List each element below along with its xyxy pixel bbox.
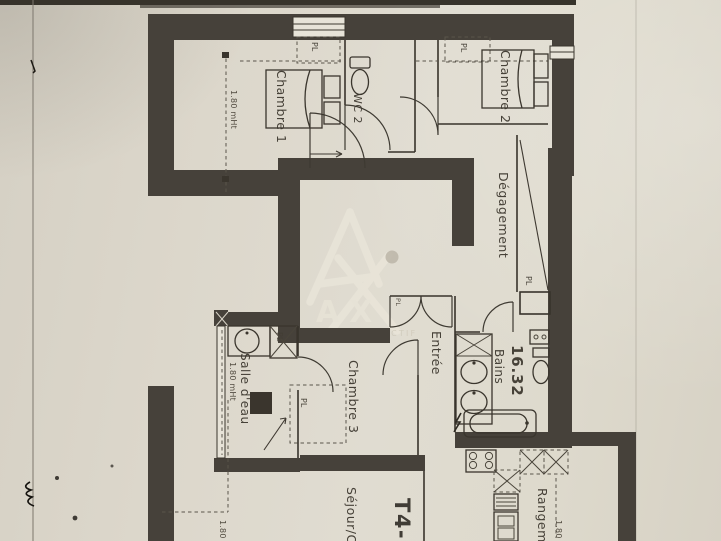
dimension-label: 1.80 mHt <box>228 362 236 401</box>
water-heater-icon <box>530 330 549 344</box>
ink-dot <box>73 516 78 521</box>
bed-icon <box>482 50 548 108</box>
ink-dot <box>111 465 114 468</box>
room-label-chambre2: Chambre 2 <box>499 50 512 123</box>
ink-dot <box>55 476 59 480</box>
door-arc <box>383 340 418 375</box>
room-label-wc2: WC 2 <box>352 93 363 124</box>
room-label-bains: Bains <box>493 349 505 384</box>
room-label-rangement: Rangem <box>536 488 549 541</box>
window-opening-arrow-icon <box>264 418 286 450</box>
closet-label: PL <box>275 332 283 341</box>
door-arc <box>421 296 452 327</box>
dimension-label: 1.80 <box>218 520 226 539</box>
room-label-chambre1: Chambre 1 <box>275 70 288 143</box>
entrance-arrow-icon <box>310 151 342 157</box>
technical-hatch-icon <box>494 450 568 492</box>
cooktop-icon <box>466 450 496 472</box>
wall-pier <box>250 392 272 414</box>
closet-label: PL <box>310 42 318 51</box>
closet-label: PL <box>459 43 467 52</box>
kitchen-unit-icon <box>494 494 518 541</box>
dimension-label: 1.80 <box>554 520 562 539</box>
room-label-degagement: Dégagement <box>497 172 510 258</box>
walls <box>148 14 636 541</box>
floor-plan-drawing: AX L'IMMOBILIER ACTIF <box>0 0 721 541</box>
watermark-logo: AX L'IMMOBILIER ACTIF <box>298 212 417 338</box>
room-label-sejour: Séjour/C <box>345 487 358 541</box>
floor-plan-photo: AX L'IMMOBILIER ACTIF <box>0 0 721 541</box>
closet-label: PL <box>524 276 532 285</box>
doors <box>298 97 513 392</box>
toilet-icon <box>350 57 370 95</box>
room-area-bains: 16.32 <box>509 345 524 396</box>
photo-edge-shadow2 <box>140 4 440 8</box>
watermark-dot-icon <box>386 251 399 264</box>
door-arc <box>400 97 438 135</box>
dimension-label: 1.80 mHt <box>229 90 237 129</box>
room-label-entree: Entrée <box>430 331 443 375</box>
watermark-letters: AX <box>316 295 382 330</box>
toilet-icon <box>533 348 549 384</box>
room-label-salle-deau: Salle d'eau <box>239 353 251 425</box>
unit-label: T4-1 <box>391 498 412 541</box>
door-arc <box>298 357 333 392</box>
window-icon <box>293 17 345 37</box>
door-arc <box>483 302 513 332</box>
closet-label: PL <box>395 298 402 307</box>
glazed-wall <box>217 326 225 458</box>
room-label-chambre3: Chambre 3 <box>347 360 360 433</box>
closet-label: PL <box>299 398 307 407</box>
round-washbasin-icon <box>228 326 270 356</box>
